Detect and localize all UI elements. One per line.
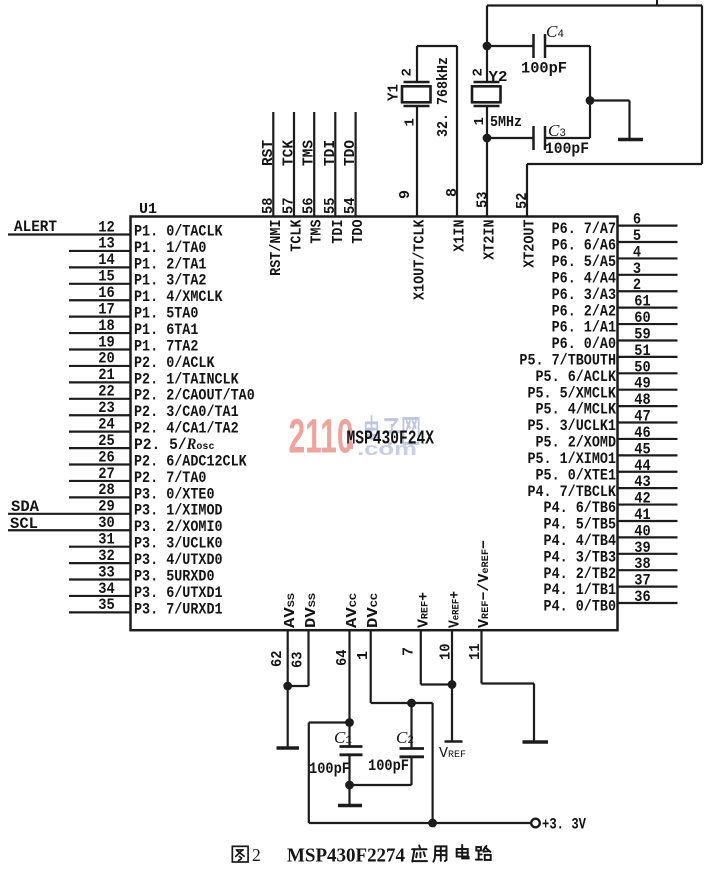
svg-text:P1. 6TA1: P1. 6TA1 — [134, 321, 198, 339]
svg-text:P6. 1/A1: P6. 1/A1 — [552, 319, 616, 337]
svg-text:17: 17 — [98, 300, 115, 318]
svg-text:P1. 0/TACLK: P1. 0/TACLK — [134, 222, 223, 240]
svg-text:P1. 7TA2: P1. 7TA2 — [134, 337, 198, 355]
svg-text:+3. 3V: +3. 3V — [542, 816, 587, 834]
svg-text:TCK: TCK — [281, 140, 298, 166]
svg-text:P3. 4/UTXD0: P3. 4/UTXD0 — [134, 551, 223, 569]
svg-text:59: 59 — [634, 325, 650, 343]
svg-text:10: 10 — [438, 644, 455, 661]
svg-text:22: 22 — [98, 383, 115, 401]
svg-text:P6. 6/A6: P6. 6/A6 — [552, 237, 616, 255]
svg-text:9: 9 — [397, 190, 414, 199]
svg-text:P5. 5/XMCLK: P5. 5/XMCLK — [527, 384, 616, 402]
svg-text:P4. 3/TB3: P4. 3/TB3 — [544, 548, 616, 566]
svg-text:30: 30 — [98, 514, 115, 532]
svg-text:MSP430F2274: MSP430F2274 — [287, 846, 405, 867]
svg-text:21: 21 — [98, 366, 115, 384]
svg-text:TCLK: TCLK — [289, 220, 306, 252]
svg-text:P1. 4/XMCLK: P1. 4/XMCLK — [134, 288, 223, 306]
svg-text:7: 7 — [401, 647, 418, 656]
svg-text:47: 47 — [634, 408, 650, 426]
svg-text:P4. 4/TB4: P4. 4/TB4 — [544, 532, 616, 550]
svg-text:TMS: TMS — [301, 140, 318, 166]
svg-text:11: 11 — [467, 644, 484, 661]
svg-text:36: 36 — [634, 588, 650, 606]
svg-text:TDI: TDI — [330, 220, 347, 244]
svg-text:P6. 3/A3: P6. 3/A3 — [552, 286, 616, 304]
svg-text:37: 37 — [634, 572, 650, 590]
svg-text:P5. 0/XTE1: P5. 0/XTE1 — [536, 466, 617, 484]
svg-text:P3. 0/XTE0: P3. 0/XTE0 — [134, 485, 215, 503]
svg-text:P2. 3/CA0/TA1: P2. 3/CA0/TA1 — [134, 403, 239, 421]
svg-text:P5. 2/XOMD: P5. 2/XOMD — [536, 434, 617, 452]
svg-text:43: 43 — [634, 473, 650, 491]
svg-text:P1. 5TA0: P1. 5TA0 — [134, 305, 198, 323]
svg-text:13: 13 — [98, 235, 115, 253]
svg-text:ALERT: ALERT — [14, 218, 57, 236]
svg-text:64: 64 — [334, 650, 351, 667]
svg-text:P5. 7/TBOUTH: P5. 7/TBOUTH — [519, 351, 616, 369]
svg-text:41: 41 — [634, 506, 650, 524]
svg-text:RST/NMI: RST/NMI — [268, 220, 285, 276]
svg-text:TMS: TMS — [309, 220, 326, 244]
svg-text:P6. 5/A5: P6. 5/A5 — [552, 253, 616, 271]
svg-text:23: 23 — [98, 399, 115, 417]
svg-text:2110: 2110 — [289, 410, 354, 464]
svg-text:P5. 1/XIMO1: P5. 1/XIMO1 — [527, 450, 616, 468]
svg-text:12: 12 — [98, 218, 115, 236]
svg-text:P6. 4/A4: P6. 4/A4 — [552, 269, 616, 287]
svg-text:29: 29 — [98, 498, 115, 516]
svg-text:SCL: SCL — [10, 515, 38, 533]
svg-text:61: 61 — [634, 293, 650, 311]
svg-text:28: 28 — [98, 481, 115, 499]
svg-text:50: 50 — [634, 358, 650, 376]
svg-text:Y2: Y2 — [489, 69, 508, 86]
svg-text:P3. 2/XOMI0: P3. 2/XOMI0 — [134, 518, 223, 536]
svg-text:P3. 1/XIMOD: P3. 1/XIMOD — [134, 502, 223, 520]
svg-text:P3. 6/UTXD1: P3. 6/UTXD1 — [134, 584, 223, 602]
svg-text:TDI: TDI — [322, 140, 339, 166]
svg-text:24: 24 — [98, 415, 115, 433]
svg-text:15: 15 — [98, 268, 115, 286]
svg-text:5MHz: 5MHz — [490, 114, 522, 131]
svg-text:48: 48 — [634, 391, 650, 409]
svg-text:P1. 2/TA1: P1. 2/TA1 — [134, 255, 206, 273]
svg-text:XT2OUT: XT2OUT — [522, 219, 539, 267]
svg-text:2: 2 — [400, 68, 416, 76]
svg-text:34: 34 — [98, 580, 115, 598]
svg-text:P4. 6/TB6: P4. 6/TB6 — [544, 499, 616, 517]
svg-text:P2. 0/ACLK: P2. 0/ACLK — [134, 354, 215, 372]
svg-text:52: 52 — [514, 193, 531, 210]
svg-text:32. 768kHz: 32. 768kHz — [436, 57, 452, 137]
svg-text:P6. 2/A2: P6. 2/A2 — [552, 302, 616, 320]
svg-text:55: 55 — [322, 198, 339, 215]
svg-text:18: 18 — [98, 317, 115, 335]
svg-text:100pF: 100pF — [521, 60, 567, 78]
svg-text:44: 44 — [634, 457, 650, 475]
svg-text:P3. 7/URXD1: P3. 7/URXD1 — [134, 600, 223, 618]
svg-text:39: 39 — [634, 539, 650, 557]
svg-text:P4. 7/TBCLK: P4. 7/TBCLK — [527, 483, 616, 501]
svg-text:P2. 1/TAINCLK: P2. 1/TAINCLK — [134, 370, 239, 388]
svg-text:2: 2 — [633, 276, 641, 294]
svg-text:60: 60 — [634, 309, 650, 327]
svg-text:P4. 5/TB5: P4. 5/TB5 — [544, 516, 616, 534]
svg-text:31: 31 — [98, 530, 115, 548]
svg-text:1: 1 — [355, 651, 372, 660]
svg-text:42: 42 — [634, 490, 650, 508]
svg-text:20: 20 — [98, 350, 115, 368]
svg-text:3: 3 — [633, 260, 641, 278]
svg-text:P2. 6/ADC12CLK: P2. 6/ADC12CLK — [134, 452, 247, 470]
svg-text:2: 2 — [471, 68, 487, 76]
svg-text:51: 51 — [634, 342, 650, 360]
svg-text:46: 46 — [634, 424, 650, 442]
svg-text:58: 58 — [260, 198, 277, 215]
svg-text:X1IN: X1IN — [452, 220, 469, 252]
svg-text:100pF: 100pF — [368, 757, 409, 775]
svg-text:1: 1 — [403, 118, 419, 126]
svg-text:X1OUT/TCLK: X1OUT/TCLK — [412, 220, 429, 301]
svg-text:P6. 7/A7: P6. 7/A7 — [552, 220, 616, 238]
svg-text:TDO: TDO — [342, 140, 359, 166]
svg-text:P4. 2/TB2: P4. 2/TB2 — [544, 565, 616, 583]
svg-text:38: 38 — [634, 555, 650, 573]
svg-text:TDO: TDO — [350, 220, 367, 244]
svg-text:P4. 0/TB0: P4. 0/TB0 — [544, 598, 616, 616]
svg-text:57: 57 — [281, 198, 298, 215]
svg-text:49: 49 — [634, 375, 650, 393]
svg-text:1: 1 — [472, 117, 488, 125]
svg-text:27: 27 — [98, 465, 115, 483]
svg-text:100pF: 100pF — [309, 760, 350, 778]
svg-text:14: 14 — [98, 251, 115, 269]
svg-text:XT2IN: XT2IN — [482, 220, 499, 260]
svg-text:P6. 0/A0: P6. 0/A0 — [552, 335, 616, 353]
svg-text:53: 53 — [475, 192, 492, 209]
svg-text:25: 25 — [98, 432, 115, 450]
svg-text:P2. 2/CAOUT/TA0: P2. 2/CAOUT/TA0 — [134, 387, 255, 405]
svg-text:SDA: SDA — [11, 498, 40, 516]
svg-text:56: 56 — [301, 198, 318, 215]
svg-text:19: 19 — [98, 333, 115, 351]
svg-text:P1. 1/TA0: P1. 1/TA0 — [134, 239, 206, 257]
svg-text:2: 2 — [252, 845, 261, 865]
svg-text:40: 40 — [634, 522, 650, 540]
svg-text:26: 26 — [98, 448, 115, 466]
svg-text:RST: RST — [260, 140, 277, 166]
svg-text:4: 4 — [633, 243, 641, 261]
svg-text:35: 35 — [98, 596, 115, 614]
svg-text:Y1: Y1 — [386, 84, 403, 101]
svg-text:33: 33 — [98, 563, 115, 581]
svg-text:54: 54 — [342, 198, 359, 215]
svg-text:P5. 6/ACLK: P5. 6/ACLK — [536, 368, 617, 386]
svg-text:5: 5 — [633, 227, 641, 245]
svg-text:P3. 3/UCLK0: P3. 3/UCLK0 — [134, 535, 223, 553]
svg-text:P3. 5URXD0: P3. 5URXD0 — [134, 567, 215, 585]
svg-text:16: 16 — [98, 284, 115, 302]
svg-text:32: 32 — [98, 547, 115, 565]
svg-text:P1. 3/TA2: P1. 3/TA2 — [134, 272, 206, 290]
svg-text:P5. 3/UCLK1: P5. 3/UCLK1 — [527, 417, 616, 435]
svg-text:P4. 1/TB1: P4. 1/TB1 — [544, 581, 616, 599]
svg-text:P2. 4/CA1/TA2: P2. 4/CA1/TA2 — [134, 420, 239, 438]
svg-text:62: 62 — [269, 651, 286, 668]
svg-text:MSP430F24X: MSP430F24X — [347, 428, 435, 450]
svg-text:100pF: 100pF — [545, 140, 589, 158]
svg-text:P2. 7/TA0: P2. 7/TA0 — [134, 469, 206, 487]
svg-text:8: 8 — [444, 188, 461, 197]
svg-text:P5. 4/MCLK: P5. 4/MCLK — [536, 401, 617, 419]
svg-text:45: 45 — [634, 440, 650, 458]
svg-text:63: 63 — [290, 652, 307, 669]
svg-text:U1: U1 — [139, 201, 157, 218]
svg-text:6: 6 — [633, 211, 641, 229]
